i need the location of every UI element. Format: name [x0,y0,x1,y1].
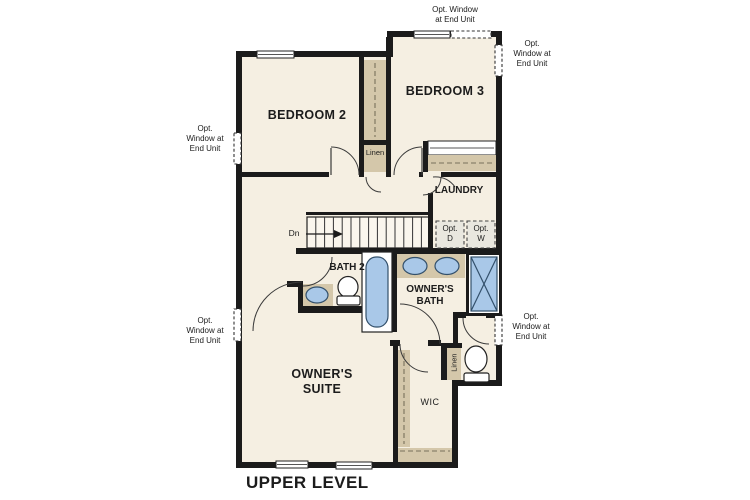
room-label-laundry: LAUNDRY [424,185,494,197]
optional-window-note-top: Opt. Window at End Unit [400,5,510,25]
stairs-down-label: Dn [284,228,304,238]
closet-label-linen-owners: Linen [449,346,458,380]
bedroom3-closet-shelf [428,155,496,171]
optional-dryer-label: Opt. D [436,224,464,244]
bath2-toilet-tank [337,296,360,305]
owners-bath-sink-right [435,258,459,275]
shower [466,252,502,316]
room-label-bedroom3: BEDROOM 3 [387,84,503,99]
optional-window-right-lower [495,315,502,345]
closet-label-linen-hall: Linen [361,148,389,157]
stair-rail [306,212,431,215]
optional-window-right-upper [495,45,502,76]
room-label-bath2: BATH 2 [316,262,378,274]
floor-plan-canvas: Opt. Window at End Unit Opt. Window at E… [0,0,750,500]
owners-bath-sink-left [403,258,427,275]
owners-toilet-tank [464,373,489,382]
stairs [306,212,431,248]
bath2-toilet [338,277,358,298]
bath2-sink [306,287,328,303]
optional-washer-label: Opt. W [467,224,495,244]
room-label-bedroom2: BEDROOM 2 [247,108,367,123]
optional-window-top [451,31,491,38]
optional-window-left-lower [234,309,241,341]
wic-shelf-bottom [398,448,452,462]
room-label-owners-suite: OWNER'S SUITE [260,367,384,398]
owners-toilet [465,346,487,372]
optional-window-left-upper [234,133,241,164]
room-label-wic: WIC [408,397,452,408]
plan-title: UPPER LEVEL [246,473,368,494]
optional-window-note-left-lower: Opt. Window at End Unit [178,316,232,345]
optional-window-note-right-upper: Opt. Window at End Unit [503,39,561,68]
floor-plan-drawing [0,0,750,500]
optional-window-note-left-upper: Opt. Window at End Unit [178,124,232,153]
room-label-owners-bath: OWNER'S BATH [395,284,465,308]
optional-window-note-right-lower: Opt. Window at End Unit [502,312,560,341]
